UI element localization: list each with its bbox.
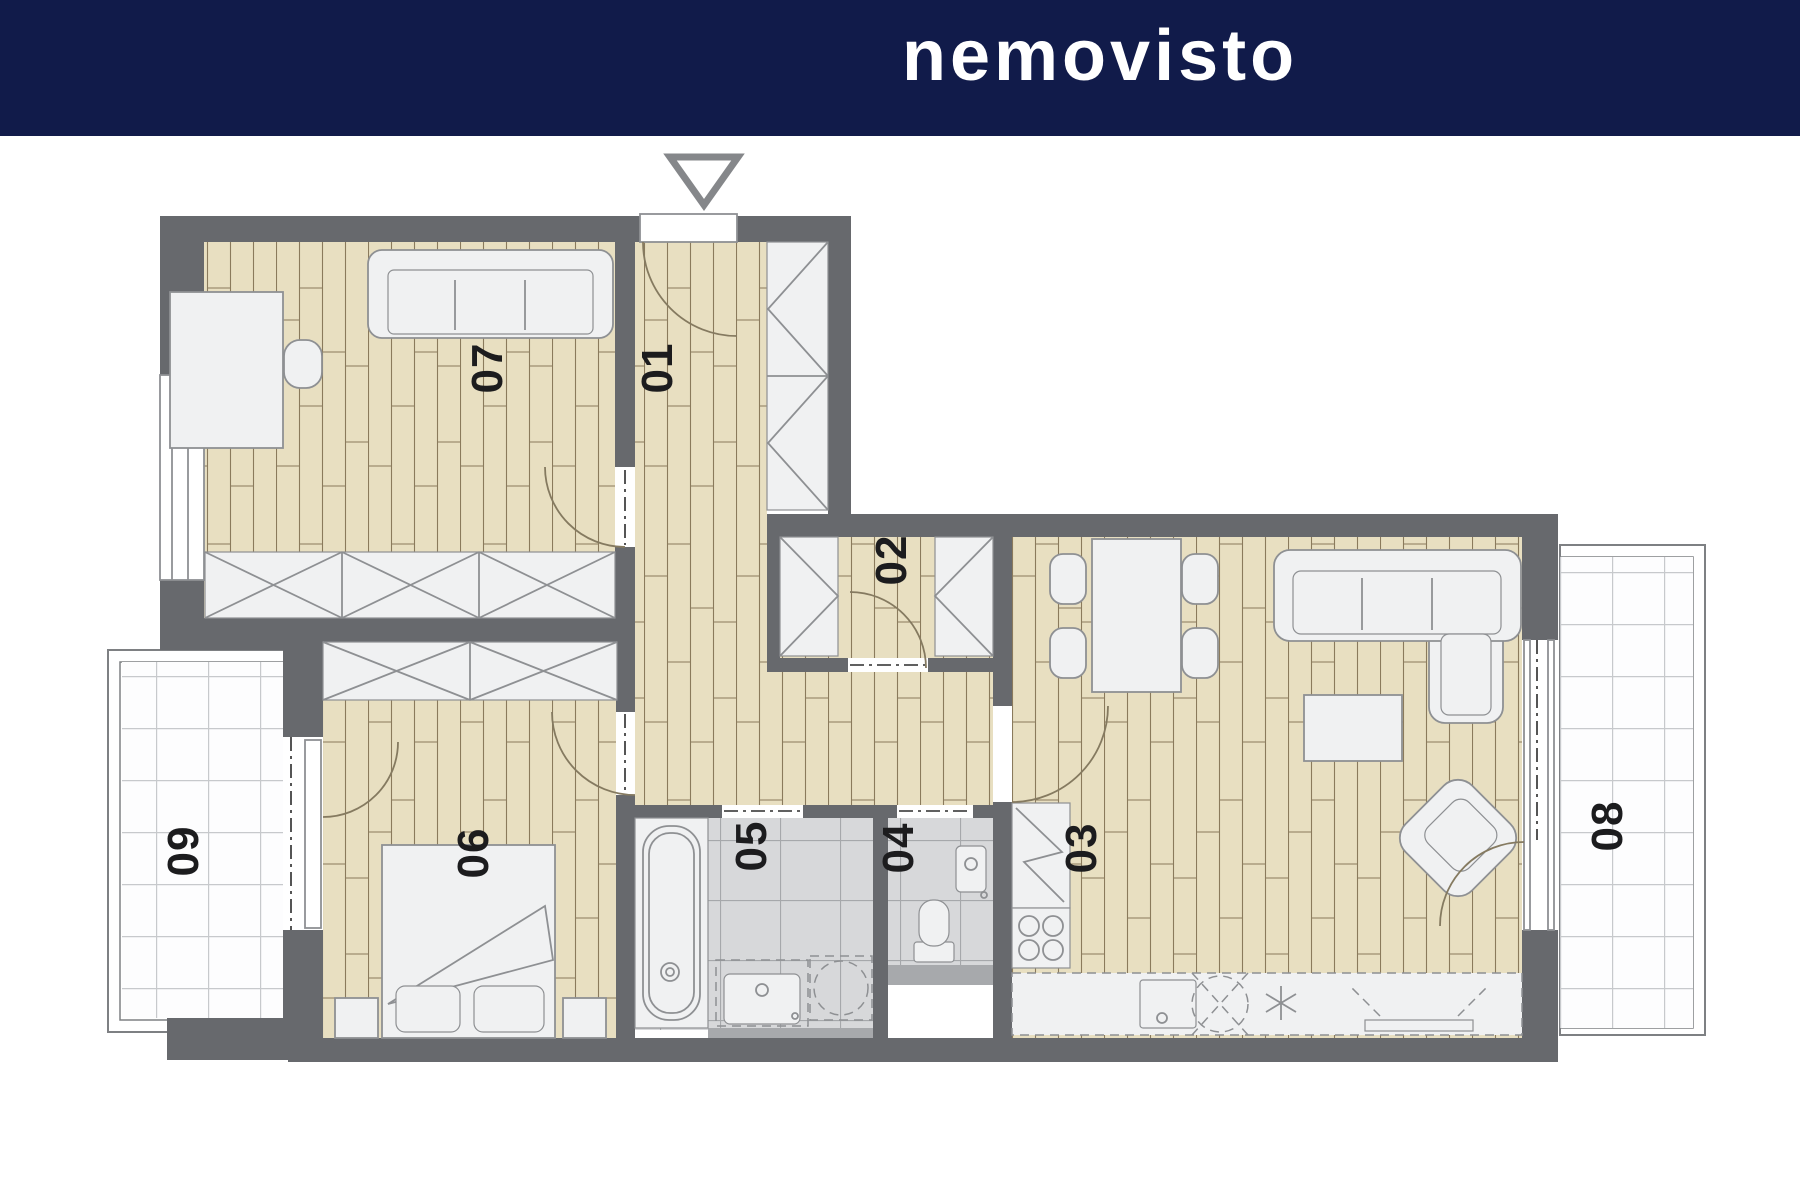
- room-label-02: 02: [867, 535, 916, 586]
- desk-chair: [284, 340, 322, 388]
- wc-niche: [888, 985, 993, 1038]
- corridor-floor-east: [767, 672, 993, 805]
- balcony-08-tiles: [1560, 557, 1693, 1028]
- page: 01 02 03 04 05 06 07 08 09 nemovisto: [0, 0, 1800, 1200]
- wardrobe-row-06: [323, 642, 617, 700]
- room-label-07: 07: [463, 343, 512, 394]
- balcony-09-door: [283, 737, 323, 930]
- room-label-05: 05: [727, 821, 776, 872]
- desk: [170, 292, 283, 448]
- stove: [1012, 908, 1070, 968]
- washbasin: [724, 974, 800, 1024]
- room-label-04: 04: [874, 823, 923, 874]
- dining-chair: [1182, 554, 1218, 604]
- wc-sink: [956, 846, 987, 898]
- wardrobe-row-07: [205, 552, 615, 618]
- entrance-door: [640, 214, 737, 242]
- kitchen-sink: [1140, 980, 1196, 1028]
- balcony-08-door: [1522, 640, 1558, 930]
- brand-logo: nemovisto: [902, 20, 1298, 92]
- header-banner: nemovisto: [0, 0, 1800, 136]
- floor-plan: 01 02 03 04 05 06 07 08 09: [0, 0, 1800, 1200]
- nightstand: [335, 998, 378, 1038]
- entrance-arrow-icon: [670, 157, 738, 205]
- coffee-table: [1304, 695, 1402, 761]
- room-label-09: 09: [159, 826, 208, 877]
- dining-chair: [1050, 628, 1086, 678]
- nightstand: [563, 998, 606, 1038]
- pillow: [396, 986, 460, 1032]
- room-label-08: 08: [1583, 801, 1632, 852]
- pillow: [474, 986, 544, 1032]
- toilet: [914, 900, 954, 962]
- room-label-06: 06: [449, 828, 498, 879]
- dining-chair: [1050, 554, 1086, 604]
- bathtub: [635, 818, 708, 1028]
- dining-table: [1092, 539, 1181, 692]
- dining-chair: [1182, 628, 1218, 678]
- balcony-08: [1560, 545, 1705, 1035]
- room-label-01: 01: [633, 343, 682, 394]
- hallway-wardrobe: [767, 242, 828, 510]
- door-gap-room-03: [993, 706, 1012, 802]
- wc-threshold-strip: [888, 965, 993, 985]
- room-label-03: 03: [1057, 823, 1106, 874]
